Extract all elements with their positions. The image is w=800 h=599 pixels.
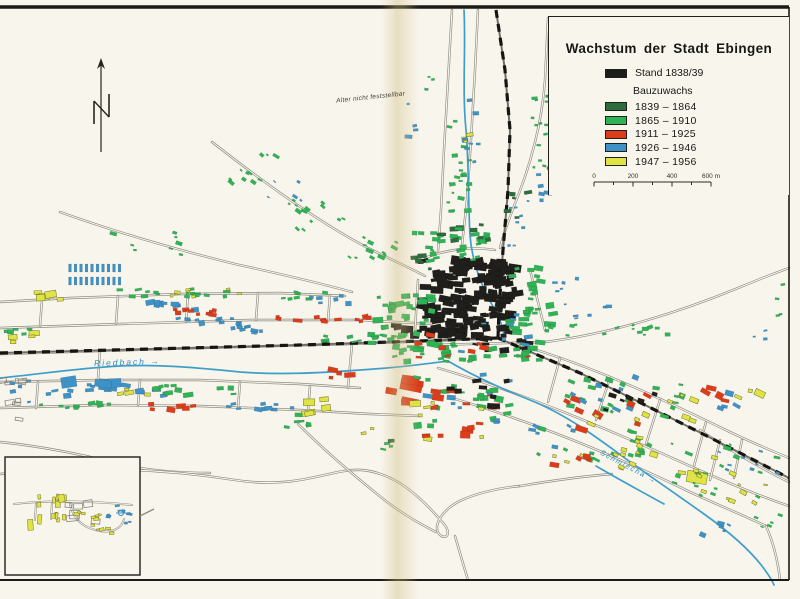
period-color-swatch bbox=[605, 143, 627, 152]
period-label: 1926 – 1946 bbox=[635, 142, 697, 154]
svg-text:200: 200 bbox=[628, 173, 639, 180]
svg-text:0: 0 bbox=[592, 173, 596, 180]
legend-period-row: 1911 – 1925 bbox=[605, 127, 697, 141]
scale-bar: 0200400600 m bbox=[589, 167, 759, 193]
legend-period-row: 1926 – 1946 bbox=[605, 141, 697, 155]
svg-text:400: 400 bbox=[667, 173, 678, 180]
period-label: 1865 – 1910 bbox=[635, 115, 697, 127]
period-color-swatch bbox=[605, 116, 627, 125]
stand-color-swatch bbox=[605, 69, 627, 78]
north-arrow bbox=[94, 58, 109, 152]
legend-period-list: 1839 – 18641865 – 19101911 – 19251926 – … bbox=[605, 100, 697, 168]
period-label: 1911 – 1925 bbox=[635, 128, 696, 140]
legend-period-row: 1865 – 1910 bbox=[605, 114, 697, 128]
legend-title: Wachstum der Stadt Ebingen bbox=[549, 41, 789, 56]
scanned-map-page: Wachstum der Stadt Ebingen Stand 1838/39… bbox=[0, 0, 800, 599]
period-label: 1947 – 1956 bbox=[635, 156, 697, 168]
period-label: 1839 – 1864 bbox=[635, 101, 697, 113]
period-color-swatch bbox=[605, 130, 627, 139]
period-color-swatch bbox=[605, 102, 627, 111]
legend-box: Wachstum der Stadt Ebingen Stand 1838/39… bbox=[548, 16, 789, 195]
stand-label: Stand 1838/39 bbox=[635, 67, 703, 79]
period-color-swatch bbox=[605, 157, 627, 166]
legend-stand-row: Stand 1838/39 bbox=[605, 67, 703, 79]
inset-map bbox=[5, 457, 154, 575]
legend-period-row: 1839 – 1864 bbox=[605, 100, 697, 114]
legend-bauzuwachs-label: Bauzuwachs bbox=[633, 85, 693, 97]
svg-text:600 m: 600 m bbox=[702, 173, 720, 180]
